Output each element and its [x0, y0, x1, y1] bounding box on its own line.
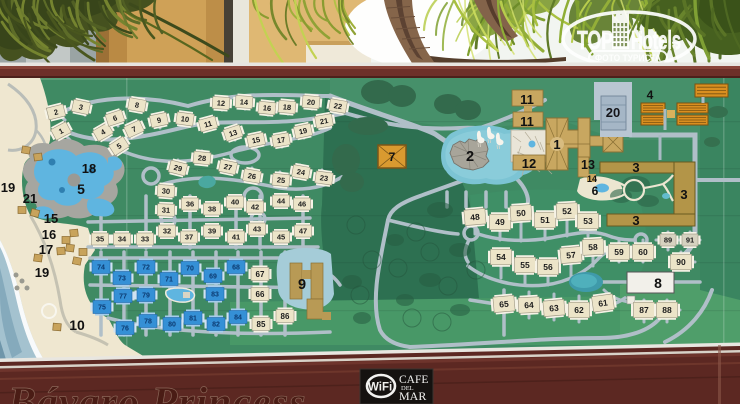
svg-text:3: 3	[680, 187, 687, 202]
svg-text:43: 43	[253, 225, 261, 234]
svg-text:46: 46	[298, 200, 306, 209]
svg-text:60: 60	[638, 247, 648, 257]
svg-text:16: 16	[262, 103, 271, 113]
svg-text:55: 55	[520, 260, 530, 270]
svg-text:59: 59	[614, 247, 624, 257]
svg-text:84: 84	[234, 315, 242, 322]
svg-text:33: 33	[141, 235, 149, 244]
svg-text:22: 22	[333, 101, 343, 111]
svg-text:5: 5	[77, 181, 85, 197]
svg-text:68: 68	[232, 265, 240, 272]
svg-text:89: 89	[664, 236, 672, 245]
svg-text:56: 56	[543, 262, 553, 272]
svg-text:1: 1	[553, 137, 560, 152]
svg-text:38: 38	[208, 205, 216, 214]
svg-text:12: 12	[217, 98, 226, 108]
svg-text:67: 67	[256, 270, 265, 279]
svg-text:47: 47	[299, 227, 307, 236]
svg-text:9: 9	[298, 277, 306, 293]
svg-text:86: 86	[281, 312, 290, 321]
svg-text:19: 19	[1, 180, 15, 195]
svg-text:57: 57	[566, 250, 577, 261]
svg-text:20: 20	[606, 105, 620, 120]
svg-text:Bávaro Princess: Bávaro Princess	[7, 380, 307, 404]
svg-text:3: 3	[632, 160, 639, 175]
svg-text:3: 3	[632, 213, 639, 228]
svg-text:19: 19	[35, 265, 49, 280]
svg-text:91: 91	[686, 236, 694, 245]
svg-text:21: 21	[319, 116, 329, 126]
svg-text:41: 41	[232, 233, 240, 242]
svg-text:12: 12	[522, 156, 536, 171]
svg-text:21: 21	[23, 191, 37, 206]
svg-text:11: 11	[520, 114, 534, 129]
svg-text:71: 71	[165, 277, 173, 284]
svg-text:74: 74	[97, 265, 105, 272]
svg-text:80: 80	[168, 322, 176, 329]
svg-text:40: 40	[231, 198, 239, 207]
svg-text:18: 18	[82, 161, 96, 176]
svg-text:87: 87	[639, 305, 649, 315]
svg-text:36: 36	[186, 200, 194, 209]
svg-text:79: 79	[142, 293, 150, 300]
svg-text:14: 14	[587, 174, 597, 184]
svg-text:75: 75	[98, 305, 106, 312]
svg-text:78: 78	[144, 319, 152, 326]
svg-text:2: 2	[466, 149, 474, 165]
svg-text:20: 20	[306, 97, 315, 107]
svg-text:14: 14	[240, 97, 250, 107]
svg-text:65: 65	[499, 299, 510, 310]
svg-text:32: 32	[163, 227, 171, 236]
svg-text:61: 61	[598, 297, 609, 308]
svg-text:44: 44	[277, 197, 286, 206]
svg-text:81: 81	[189, 316, 197, 323]
svg-text:49: 49	[495, 217, 505, 227]
svg-text:82: 82	[212, 322, 220, 329]
svg-text:30: 30	[162, 186, 171, 196]
svg-text:90: 90	[676, 257, 686, 267]
svg-text:16: 16	[42, 227, 56, 242]
svg-text:54: 54	[496, 252, 506, 262]
svg-text:72: 72	[142, 265, 150, 272]
svg-text:23: 23	[319, 173, 329, 183]
svg-text:64: 64	[524, 300, 534, 310]
svg-text:35: 35	[96, 235, 104, 244]
svg-text:48: 48	[470, 212, 481, 223]
svg-text:77: 77	[119, 294, 127, 301]
svg-text:25: 25	[276, 175, 285, 185]
svg-text:70: 70	[186, 266, 194, 273]
svg-text:10: 10	[69, 317, 85, 333]
svg-text:51: 51	[540, 215, 550, 225]
svg-text:13: 13	[581, 158, 595, 172]
svg-text:18: 18	[282, 102, 291, 112]
svg-text:17: 17	[276, 135, 286, 145]
svg-text:MAR: MAR	[399, 389, 426, 403]
svg-text:17: 17	[39, 242, 53, 257]
svg-text:85: 85	[257, 320, 266, 329]
svg-text:50: 50	[516, 208, 526, 219]
svg-text:88: 88	[662, 305, 672, 315]
svg-text:26: 26	[247, 171, 257, 181]
svg-text:15: 15	[44, 211, 58, 226]
svg-text:11: 11	[520, 92, 534, 107]
svg-text:28: 28	[197, 153, 206, 163]
svg-text:69: 69	[209, 274, 217, 281]
svg-text:7: 7	[389, 150, 396, 164]
svg-text:34: 34	[118, 235, 127, 244]
svg-text:58: 58	[588, 242, 598, 252]
svg-text:76: 76	[121, 326, 129, 333]
svg-text:45: 45	[277, 233, 285, 242]
svg-text:66: 66	[256, 290, 265, 299]
svg-text:63: 63	[549, 303, 560, 314]
svg-text:ФОТО ТУРИСТА: ФОТО ТУРИСТА	[595, 53, 661, 63]
svg-text:31: 31	[162, 206, 171, 215]
svg-text:62: 62	[574, 305, 584, 315]
svg-text:WiFi: WiFi	[368, 382, 392, 394]
svg-text:10: 10	[180, 114, 190, 124]
svg-text:8: 8	[654, 275, 662, 291]
svg-text:39: 39	[208, 227, 216, 236]
svg-text:37: 37	[185, 233, 193, 242]
svg-text:4: 4	[647, 88, 654, 102]
svg-text:83: 83	[211, 292, 219, 299]
svg-text:52: 52	[562, 206, 572, 216]
svg-text:73: 73	[118, 276, 126, 283]
svg-text:6: 6	[592, 184, 599, 198]
svg-text:53: 53	[583, 216, 593, 226]
svg-text:42: 42	[251, 203, 259, 212]
